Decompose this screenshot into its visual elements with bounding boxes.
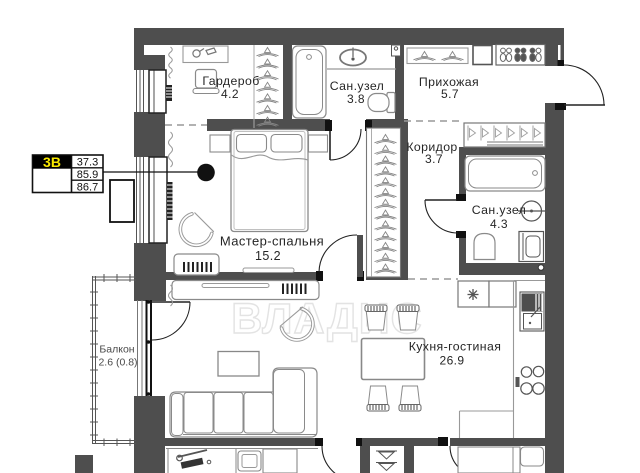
svg-text:Балкон: Балкон [99,344,134,356]
svg-text:Сан.узел: Сан.узел [472,203,527,217]
svg-text:85.9: 85.9 [77,169,98,181]
svg-text:4.2: 4.2 [221,87,239,101]
svg-text:3.7: 3.7 [425,152,443,166]
svg-text:Мастер-спальня: Мастер-спальня [220,234,324,249]
svg-text:15.2: 15.2 [255,249,281,263]
svg-text:ВЛАДИС: ВЛАДИС [231,295,422,343]
svg-text:4.3: 4.3 [490,217,508,231]
svg-text:Гардероб: Гардероб [202,74,259,88]
svg-text:Кухня-гостиная: Кухня-гостиная [409,340,502,354]
svg-text:Сан.узел: Сан.узел [330,79,385,93]
svg-text:86.7: 86.7 [77,181,98,193]
svg-text:3.8: 3.8 [347,92,365,106]
svg-text:3В: 3В [43,154,61,170]
svg-text:26.9: 26.9 [440,354,465,368]
svg-text:37.3: 37.3 [77,157,98,169]
svg-text:5.7: 5.7 [441,87,459,101]
svg-text:2.6 (0.8): 2.6 (0.8) [98,357,137,369]
